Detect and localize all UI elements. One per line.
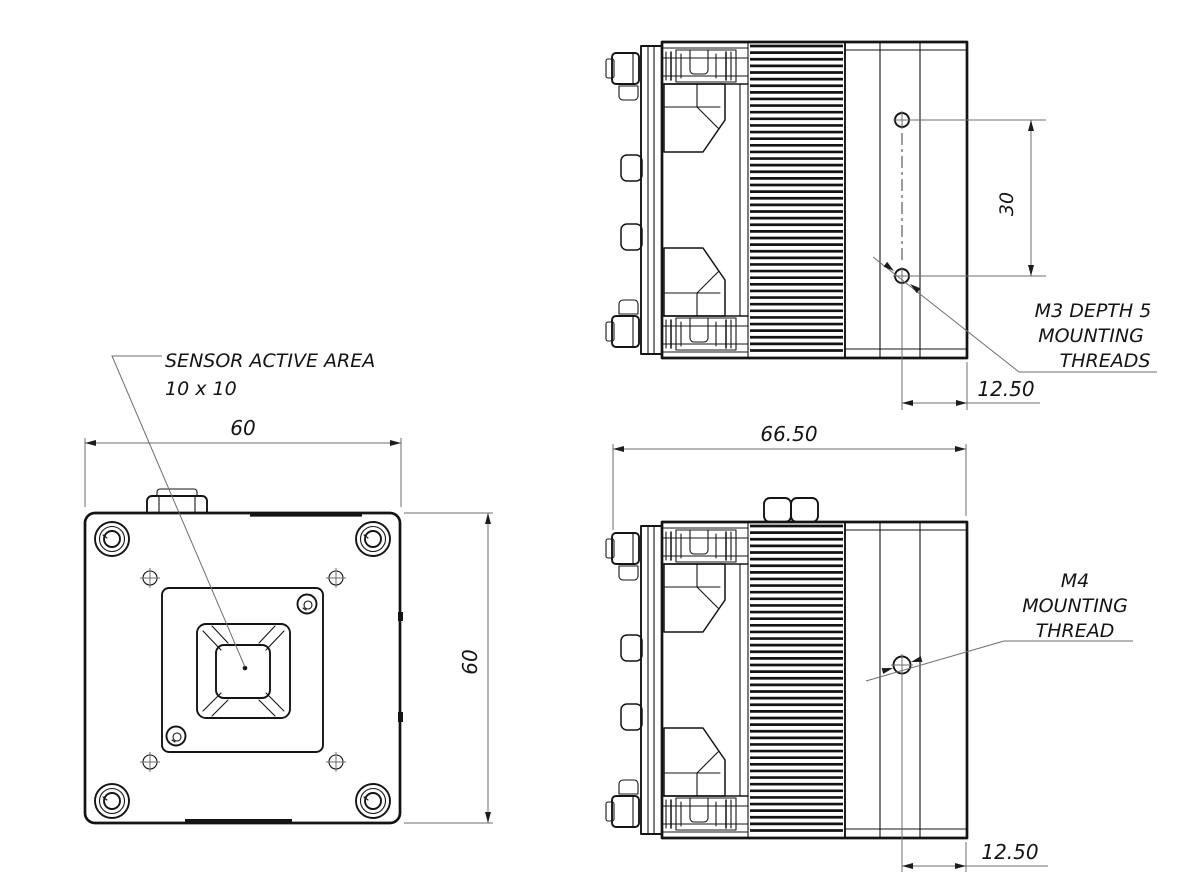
m4-callout-line2: MOUNTING — [1022, 595, 1128, 617]
m3-callout-line1: M3 DEPTH 5 — [1035, 300, 1152, 322]
corner-screw — [356, 784, 390, 818]
technical-drawing: SENSOR ACTIVE AREA 10 x 10 60 60 — [0, 0, 1200, 886]
m4-callout-line1: M4 — [1061, 570, 1089, 592]
mount-hole — [140, 752, 160, 772]
leader-line — [112, 356, 245, 667]
sensor-plate — [162, 588, 323, 752]
leader-line — [866, 641, 1004, 681]
top-connector-profile — [764, 498, 818, 522]
dim-front-width: 60 — [85, 416, 401, 507]
corner-screw — [95, 784, 129, 818]
dim-hole-offset-top: 12.50 — [902, 283, 1040, 410]
heatsink-fins-bottom — [750, 526, 843, 831]
corner-screw — [356, 522, 390, 556]
side-tab-mark — [398, 612, 403, 621]
corner-screw — [95, 522, 129, 556]
front-view — [85, 489, 403, 823]
dim-hole-spacing: 30 — [911, 120, 1046, 276]
callout-sensor-active-area: SENSOR ACTIVE AREA 10 x 10 — [112, 350, 375, 667]
mount-hole — [140, 568, 160, 588]
front-connector — [147, 489, 207, 513]
leader-line — [873, 257, 1019, 372]
sensor-socket — [197, 624, 290, 718]
m3-hole-upper — [893, 111, 911, 129]
plate-screw — [167, 727, 186, 746]
callout-m3-threads: M3 DEPTH 5 MOUNTING THREADS — [873, 257, 1157, 372]
m4-callout-line3: THREAD — [1036, 620, 1115, 642]
dim-hole-spacing-value: 30 — [996, 192, 1018, 216]
dim-overall-width: 66.50 — [613, 422, 966, 530]
mount-hole — [326, 568, 346, 588]
heatsink-fins-top — [750, 46, 843, 351]
callout-m4-thread: M4 MOUNTING THREAD — [866, 570, 1133, 681]
sensor-callout-line2: 10 x 10 — [165, 378, 237, 400]
dim-hole-offset-top-value: 12.50 — [977, 377, 1034, 401]
sensor-callout-line1: SENSOR ACTIVE AREA — [165, 350, 375, 372]
drawing-canvas: SENSOR ACTIVE AREA 10 x 10 60 60 — [0, 0, 1200, 886]
dim-hole-offset-bottom-value: 12.50 — [981, 840, 1038, 864]
m3-callout-line3: THREADS — [1060, 350, 1151, 372]
side-view-bottom — [606, 498, 967, 838]
dim-front-height-value: 60 — [458, 649, 482, 674]
mount-hole — [326, 752, 346, 772]
dim-hole-offset-bottom: 12.50 — [902, 676, 1048, 872]
dim-overall-width-value: 66.50 — [760, 422, 817, 446]
dim-front-width-value: 60 — [230, 416, 255, 440]
m3-callout-line2: MOUNTING — [1038, 325, 1144, 347]
plate-screw — [298, 595, 317, 614]
side-tab-mark — [398, 712, 403, 722]
front-body — [85, 513, 400, 823]
m3-hole-lower — [893, 267, 911, 285]
dim-front-height: 60 — [404, 513, 493, 823]
